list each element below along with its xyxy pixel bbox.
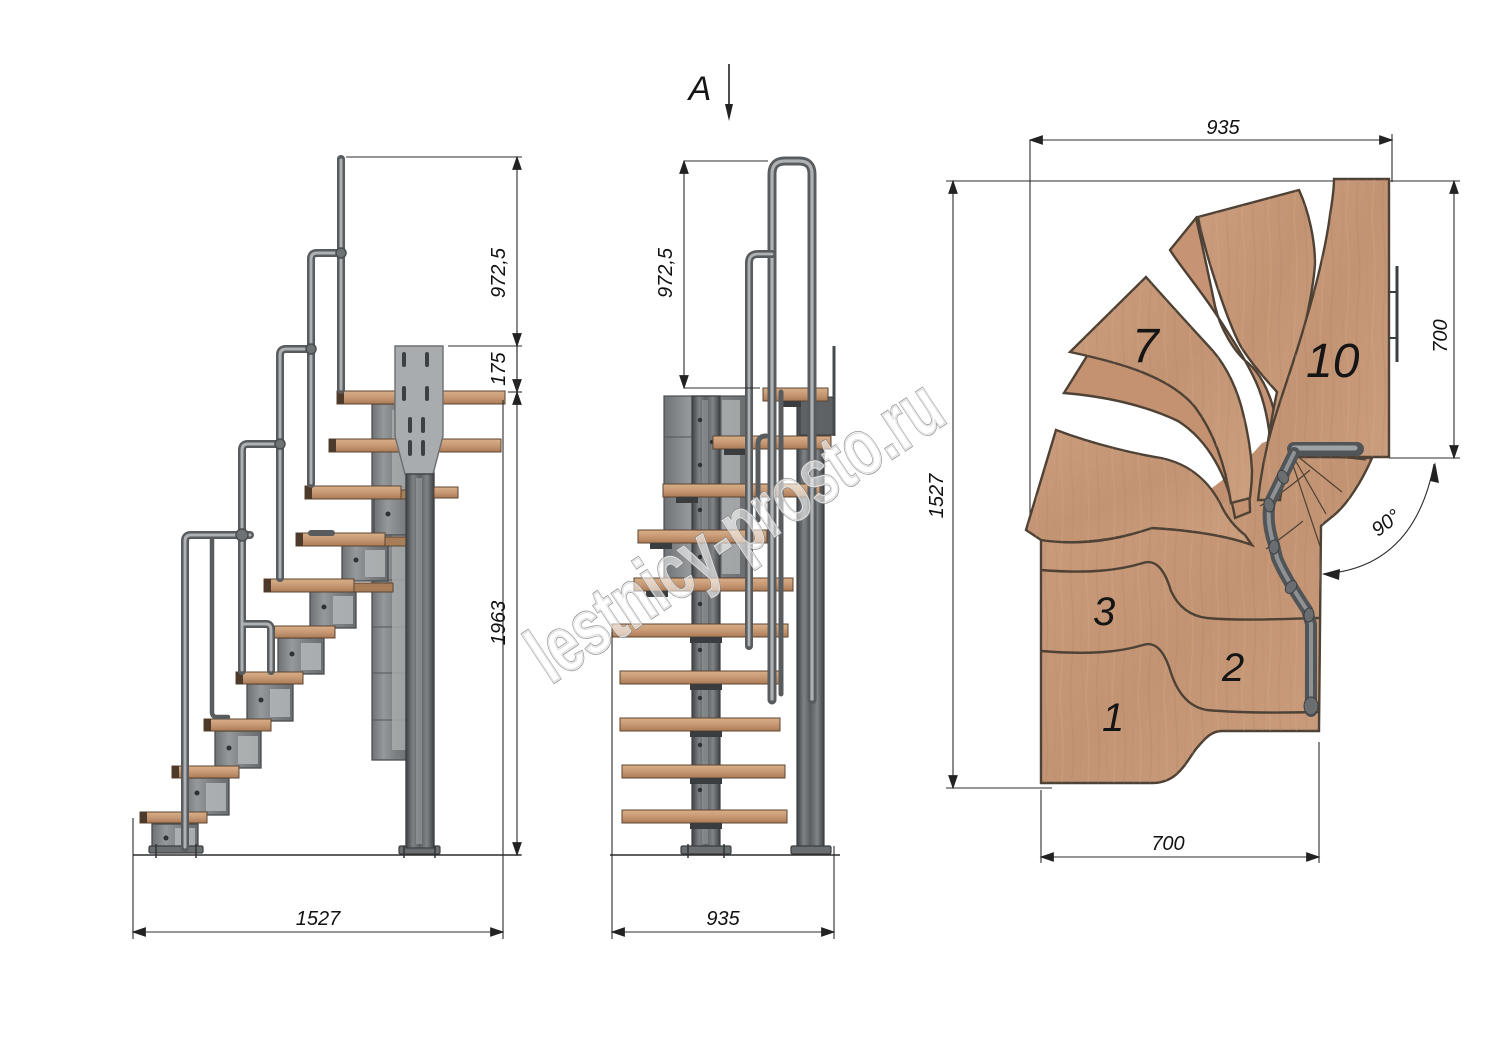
svg-text:175: 175 bbox=[488, 351, 510, 385]
svg-text:935: 935 bbox=[706, 908, 740, 930]
svg-text:3: 3 bbox=[1093, 590, 1115, 634]
svg-text:1527: 1527 bbox=[926, 473, 948, 518]
svg-text:10: 10 bbox=[1306, 335, 1360, 388]
svg-text:A: A bbox=[687, 70, 712, 108]
svg-text:2: 2 bbox=[1221, 646, 1244, 690]
svg-text:700: 700 bbox=[1151, 833, 1184, 855]
svg-text:1: 1 bbox=[1102, 696, 1124, 740]
svg-text:700: 700 bbox=[1430, 319, 1452, 352]
svg-text:1963: 1963 bbox=[488, 601, 510, 646]
svg-text:972,5: 972,5 bbox=[488, 247, 510, 298]
svg-text:972,5: 972,5 bbox=[655, 247, 677, 298]
svg-text:935: 935 bbox=[1206, 117, 1240, 139]
svg-text:1527: 1527 bbox=[296, 908, 341, 930]
svg-text:7: 7 bbox=[1132, 320, 1161, 373]
